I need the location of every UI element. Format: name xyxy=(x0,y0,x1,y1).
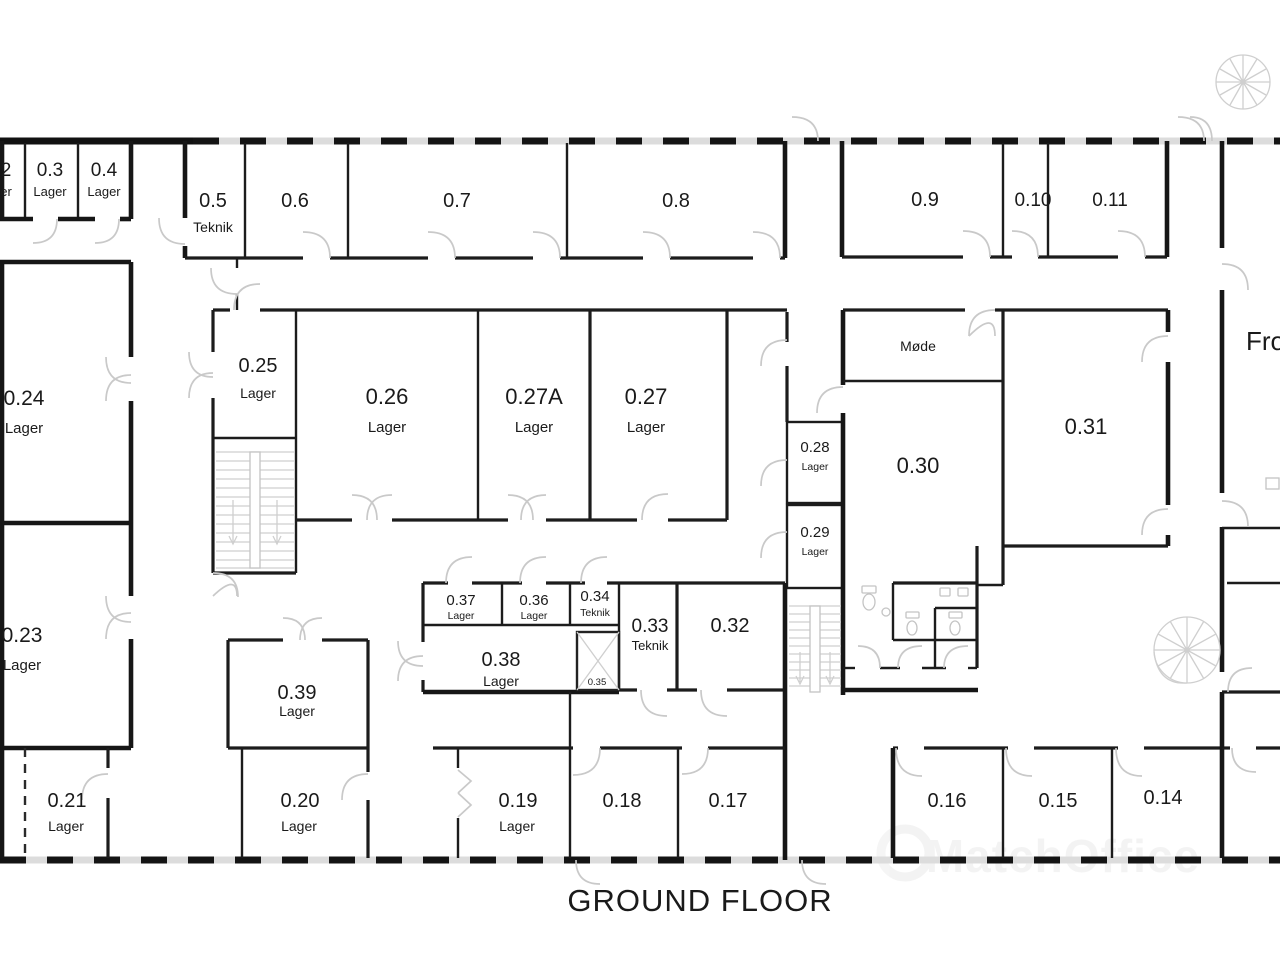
room-0.35-number: 0.35 xyxy=(588,677,607,688)
room-0.28-number: 0.28 xyxy=(800,439,829,456)
room-0.34-number: 0.34 xyxy=(580,588,609,605)
room-0.25-number: 0.25 xyxy=(239,355,278,377)
interior-walls xyxy=(0,141,1280,860)
room-0.36-number: 0.36 xyxy=(519,592,548,609)
room-0.16-number: 0.16 xyxy=(928,790,967,812)
room-0.23-type: Lager xyxy=(3,657,41,674)
room-0.39-number: 0.39 xyxy=(278,682,317,704)
room-0.28-type: Lager xyxy=(802,461,829,473)
room-0.10-number: 0.10 xyxy=(1015,190,1052,211)
staircase-secondary xyxy=(789,606,841,692)
room-0.37-number: 0.37 xyxy=(446,592,475,609)
room-labels: 2 er 0.3 Lager 0.4 Lager 0.5 Teknik 0.6 … xyxy=(0,160,1280,834)
room-0.2-number: 2 xyxy=(1,160,12,181)
room-0.11-number: 0.11 xyxy=(1092,190,1128,211)
room-0.29-type: Lager xyxy=(802,546,829,558)
room-0.25-type: Lager xyxy=(240,385,276,401)
room-0.18-number: 0.18 xyxy=(603,790,642,812)
staircase-main xyxy=(216,452,294,568)
room-0.37-type: Lager xyxy=(448,610,475,622)
room-0.23-number: 0.23 xyxy=(2,624,43,647)
room-0.3-number: 0.3 xyxy=(37,160,63,181)
room-mode-label: Møde xyxy=(900,338,936,354)
room-0.5-type: Teknik xyxy=(193,219,234,235)
room-0.27A-number: 0.27A xyxy=(505,384,563,409)
room-0.19-number: 0.19 xyxy=(499,790,538,812)
room-0.26-number: 0.26 xyxy=(366,384,409,409)
room-0.4-number: 0.4 xyxy=(91,160,118,181)
room-0.7-number: 0.7 xyxy=(443,190,471,212)
room-0.17-number: 0.17 xyxy=(709,790,748,812)
room-0.29-number: 0.29 xyxy=(800,524,829,541)
room-0.15-number: 0.15 xyxy=(1039,790,1078,812)
room-0.27A-type: Lager xyxy=(515,419,553,436)
room-frokost-label: Frok xyxy=(1246,326,1280,356)
room-0.21-number: 0.21 xyxy=(48,790,87,812)
room-0.21-type: Lager xyxy=(48,818,84,834)
room-0.31-number: 0.31 xyxy=(1065,414,1108,439)
room-0.33-type: Teknik xyxy=(632,638,669,653)
room-0.19-type: Lager xyxy=(499,818,535,834)
room-0.4-type: Lager xyxy=(87,184,121,199)
room-0.30-number: 0.30 xyxy=(897,453,940,478)
room-0.5-number: 0.5 xyxy=(199,190,227,212)
room-0.36-type: Lager xyxy=(521,610,548,622)
spiral-stair-right xyxy=(1154,617,1220,683)
room-0.20-number: 0.20 xyxy=(281,790,320,812)
room-0.3-type: Lager xyxy=(33,184,67,199)
room-0.14-number: 0.14 xyxy=(1144,787,1183,809)
room-0.20-type: Lager xyxy=(281,818,317,834)
room-0.8-number: 0.8 xyxy=(662,190,690,212)
floor-plan: MatchOffice xyxy=(0,0,1280,960)
room-0.39-type: Lager xyxy=(279,703,315,719)
room-0.6-number: 0.6 xyxy=(281,190,309,212)
room-0.9-number: 0.9 xyxy=(911,189,939,211)
room-0.27-type: Lager xyxy=(627,419,665,436)
watermark-logo: MatchOffice xyxy=(881,829,1200,882)
toilet-fixtures xyxy=(862,478,1279,635)
outer-walls xyxy=(0,141,1280,860)
watermark-text: MatchOffice xyxy=(926,830,1200,882)
room-0.32-number: 0.32 xyxy=(711,615,750,637)
room-0.34-type: Teknik xyxy=(580,607,611,619)
room-0.24-type: Lager xyxy=(5,420,43,437)
floor-title: GROUND FLOOR xyxy=(567,883,832,918)
room-0.33-number: 0.33 xyxy=(632,616,669,637)
room-0.24-number: 0.24 xyxy=(4,387,45,410)
room-0.2-type: er xyxy=(0,184,12,199)
room-0.27-number: 0.27 xyxy=(625,384,668,409)
room-0.26-type: Lager xyxy=(368,419,406,436)
room-0.38-number: 0.38 xyxy=(482,649,521,671)
room-0.38-type: Lager xyxy=(483,673,519,689)
